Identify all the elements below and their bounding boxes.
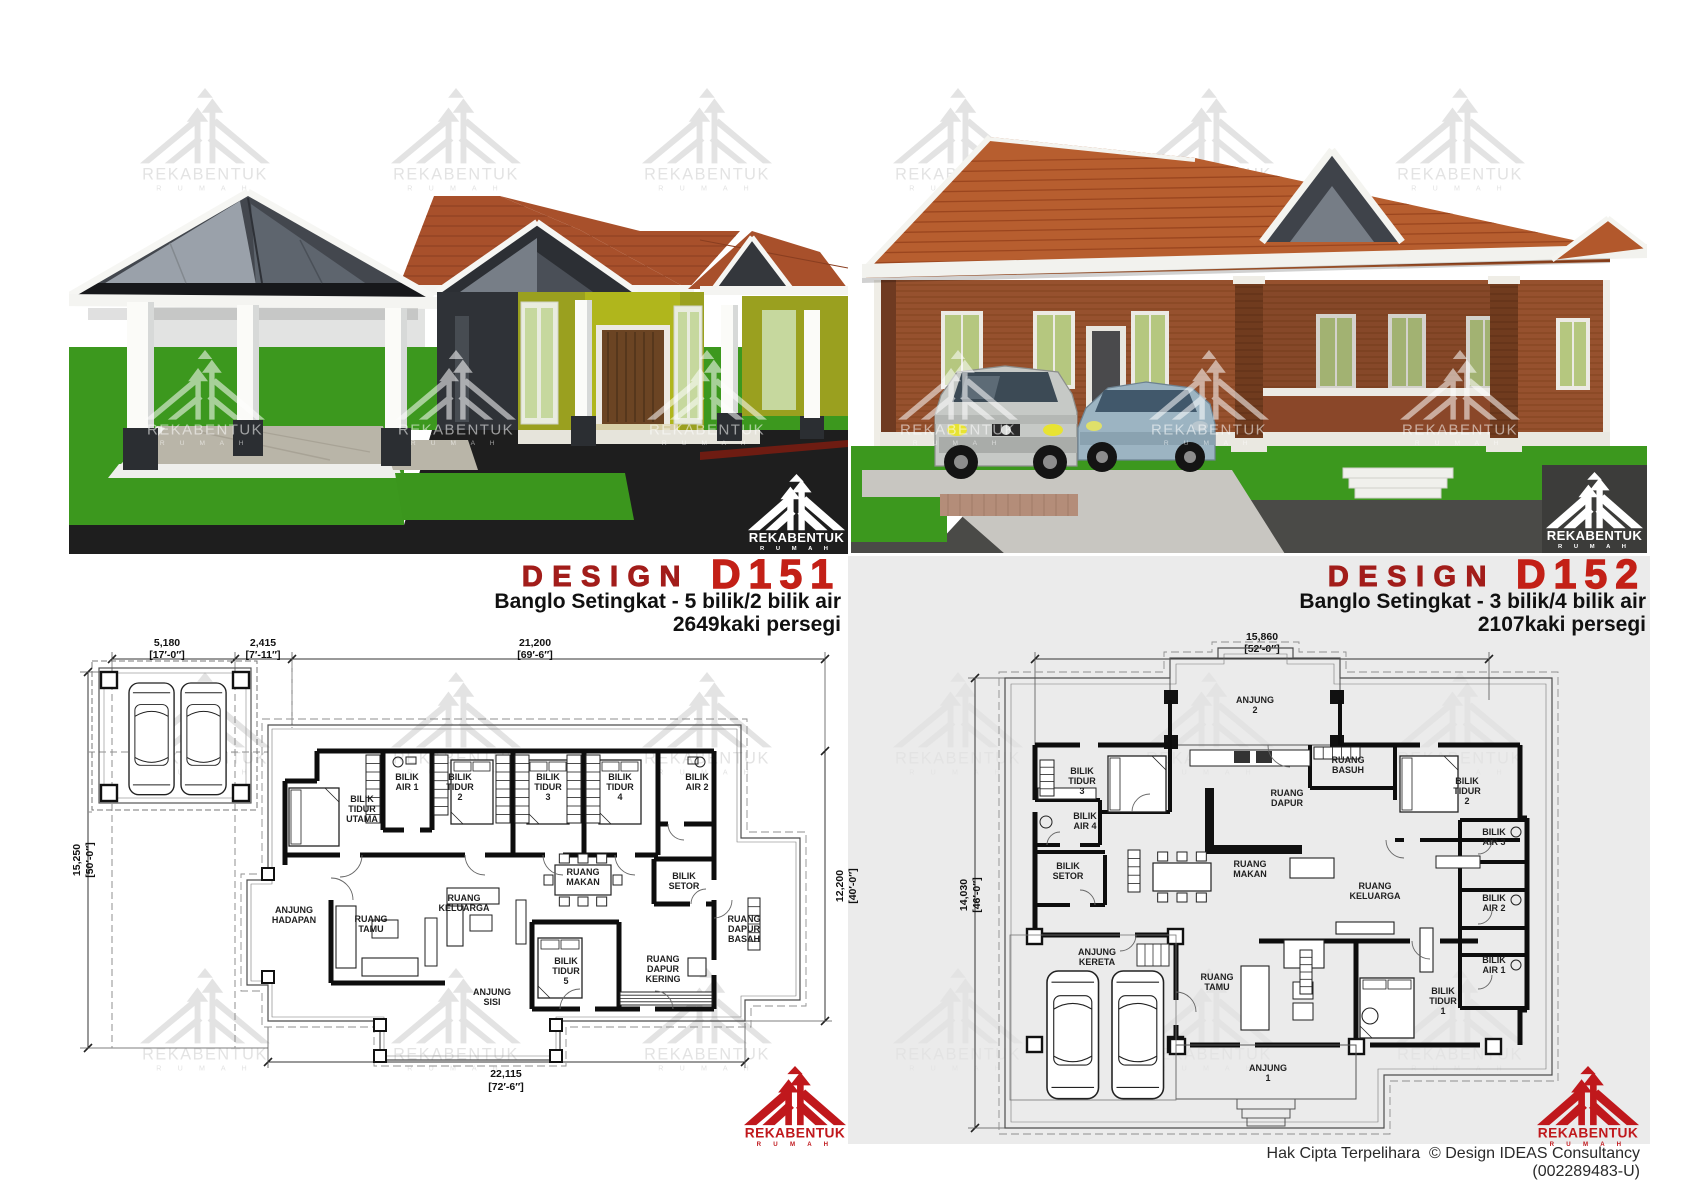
svg-text:DESIGN: DESIGN (522, 561, 690, 593)
svg-text:Banglo Setingkat - 5 bilik/2 b: Banglo Setingkat - 5 bilik/2 bilik air (494, 590, 841, 613)
svg-text:KELUARGA: KELUARGA (439, 903, 490, 913)
svg-text:TIDUR: TIDUR (446, 782, 474, 792)
svg-text:ANJUNG: ANJUNG (275, 905, 313, 915)
svg-text:BILIK: BILIK (1056, 861, 1080, 871)
svg-text:14,030: 14,030 (958, 879, 970, 911)
svg-text:AIR 4: AIR 4 (1073, 821, 1096, 831)
svg-text:UTAMA: UTAMA (346, 814, 378, 824)
svg-text:BILIK: BILIK (672, 871, 696, 881)
svg-text:Hak Cipta Terpelihara © Desig: Hak Cipta Terpelihara © Design IDEAS Con… (1267, 1145, 1640, 1162)
svg-text:HADAPAN: HADAPAN (272, 915, 316, 925)
svg-text:MAKAN: MAKAN (1233, 869, 1267, 879)
svg-text:2107kaki persegi: 2107kaki persegi (1478, 613, 1646, 636)
svg-text:22,115: 22,115 (490, 1068, 522, 1080)
svg-text:BILIK: BILIK (1482, 955, 1506, 965)
svg-text:DAPUR: DAPUR (647, 964, 680, 974)
svg-text:BILIK: BILIK (1070, 766, 1094, 776)
svg-text:2: 2 (1464, 796, 1469, 806)
svg-text:RUANG: RUANG (647, 954, 680, 964)
svg-text:DAPUR: DAPUR (1271, 798, 1304, 808)
svg-text:MAKAN: MAKAN (566, 877, 600, 887)
svg-text:KERING: KERING (645, 974, 680, 984)
svg-text:TIDUR: TIDUR (1068, 776, 1096, 786)
svg-text:RUANG: RUANG (728, 914, 761, 924)
svg-text:BILIK: BILIK (554, 956, 578, 966)
svg-text:TIDUR: TIDUR (348, 804, 376, 814)
svg-text:SISI: SISI (483, 997, 500, 1007)
svg-text:TIDUR: TIDUR (1453, 786, 1481, 796)
svg-text:RUANG: RUANG (448, 893, 481, 903)
svg-text:[50′-0″]: [50′-0″] (84, 842, 96, 878)
svg-text:21,200: 21,200 (519, 637, 551, 649)
svg-text:TAMU: TAMU (1204, 982, 1229, 992)
svg-text:ANJUNG: ANJUNG (473, 987, 511, 997)
svg-text:2: 2 (457, 792, 462, 802)
svg-text:5: 5 (563, 976, 568, 986)
svg-text:3: 3 (1079, 786, 1084, 796)
svg-text:2649kaki persegi: 2649kaki persegi (673, 613, 841, 636)
svg-text:[69′-6″]: [69′-6″] (517, 649, 553, 661)
svg-text:5,180: 5,180 (154, 637, 180, 649)
svg-text:ANJUNG: ANJUNG (1236, 695, 1274, 705)
svg-text:15,250: 15,250 (71, 844, 83, 876)
svg-text:RUANG: RUANG (567, 867, 600, 877)
svg-text:RUANG: RUANG (1271, 788, 1304, 798)
svg-text:TIDUR: TIDUR (534, 782, 562, 792)
svg-text:[40′-0″]: [40′-0″] (847, 868, 859, 904)
svg-text:RUANG: RUANG (355, 914, 388, 924)
svg-text:SETOR: SETOR (669, 881, 700, 891)
svg-text:[46′-0″]: [46′-0″] (971, 877, 983, 913)
svg-text:BASAH: BASAH (728, 934, 760, 944)
svg-text:RUANG: RUANG (1234, 859, 1267, 869)
svg-text:1: 1 (1440, 1006, 1445, 1016)
svg-text:DAPUR: DAPUR (728, 924, 761, 934)
svg-text:BILIK: BILIK (1431, 986, 1455, 996)
svg-text:TIDUR: TIDUR (552, 966, 580, 976)
svg-text:4: 4 (617, 792, 622, 802)
svg-text:RUANG: RUANG (1332, 755, 1365, 765)
svg-text:BASUH: BASUH (1332, 765, 1364, 775)
svg-text:BILIK: BILIK (1073, 811, 1097, 821)
svg-text:BILIK: BILIK (608, 772, 632, 782)
svg-text:(002289483-U): (002289483-U) (1532, 1163, 1640, 1180)
svg-text:ANJUNG: ANJUNG (1078, 947, 1116, 957)
svg-text:2,415: 2,415 (250, 637, 276, 649)
svg-text:DESIGN: DESIGN (1328, 561, 1496, 593)
svg-text:TIDUR: TIDUR (606, 782, 634, 792)
svg-text:12,200: 12,200 (834, 870, 846, 902)
svg-text:AIR 3: AIR 3 (1482, 837, 1505, 847)
svg-text:KELUARGA: KELUARGA (1350, 891, 1401, 901)
svg-text:BILIK: BILIK (1482, 827, 1506, 837)
svg-text:2: 2 (1252, 705, 1257, 715)
svg-text:AIR 2: AIR 2 (685, 782, 708, 792)
svg-text:3: 3 (545, 792, 550, 802)
svg-text:15,860: 15,860 (1246, 631, 1278, 643)
svg-text:[17′-0″]: [17′-0″] (149, 649, 185, 661)
svg-text:AIR 1: AIR 1 (1482, 965, 1505, 975)
svg-text:AIR 1: AIR 1 (395, 782, 418, 792)
svg-text:1: 1 (1265, 1073, 1270, 1083)
svg-text:BILIK: BILIK (350, 794, 374, 804)
svg-text:AIR 2: AIR 2 (1482, 903, 1505, 913)
svg-text:ANJUNG: ANJUNG (1249, 1063, 1287, 1073)
svg-text:BILIK: BILIK (395, 772, 419, 782)
svg-text:RUANG: RUANG (1359, 881, 1392, 891)
svg-text:BILIK: BILIK (1455, 776, 1479, 786)
svg-text:RUANG: RUANG (1201, 972, 1234, 982)
svg-text:TIDUR: TIDUR (1429, 996, 1457, 1006)
svg-text:BILIK: BILIK (448, 772, 472, 782)
svg-text:BILIK: BILIK (1482, 893, 1506, 903)
svg-text:KERETA: KERETA (1079, 957, 1116, 967)
svg-text:SETOR: SETOR (1053, 871, 1084, 881)
svg-text:TAMU: TAMU (358, 924, 383, 934)
svg-text:[72′-6″]: [72′-6″] (488, 1081, 524, 1093)
svg-text:[52′-0″]: [52′-0″] (1244, 643, 1280, 655)
svg-text:BILIK: BILIK (685, 772, 709, 782)
svg-text:[7′-11″]: [7′-11″] (246, 649, 281, 661)
svg-text:BILIK: BILIK (536, 772, 560, 782)
svg-text:Banglo Setingkat - 3 bilik/4 b: Banglo Setingkat - 3 bilik/4 bilik air (1299, 590, 1646, 613)
